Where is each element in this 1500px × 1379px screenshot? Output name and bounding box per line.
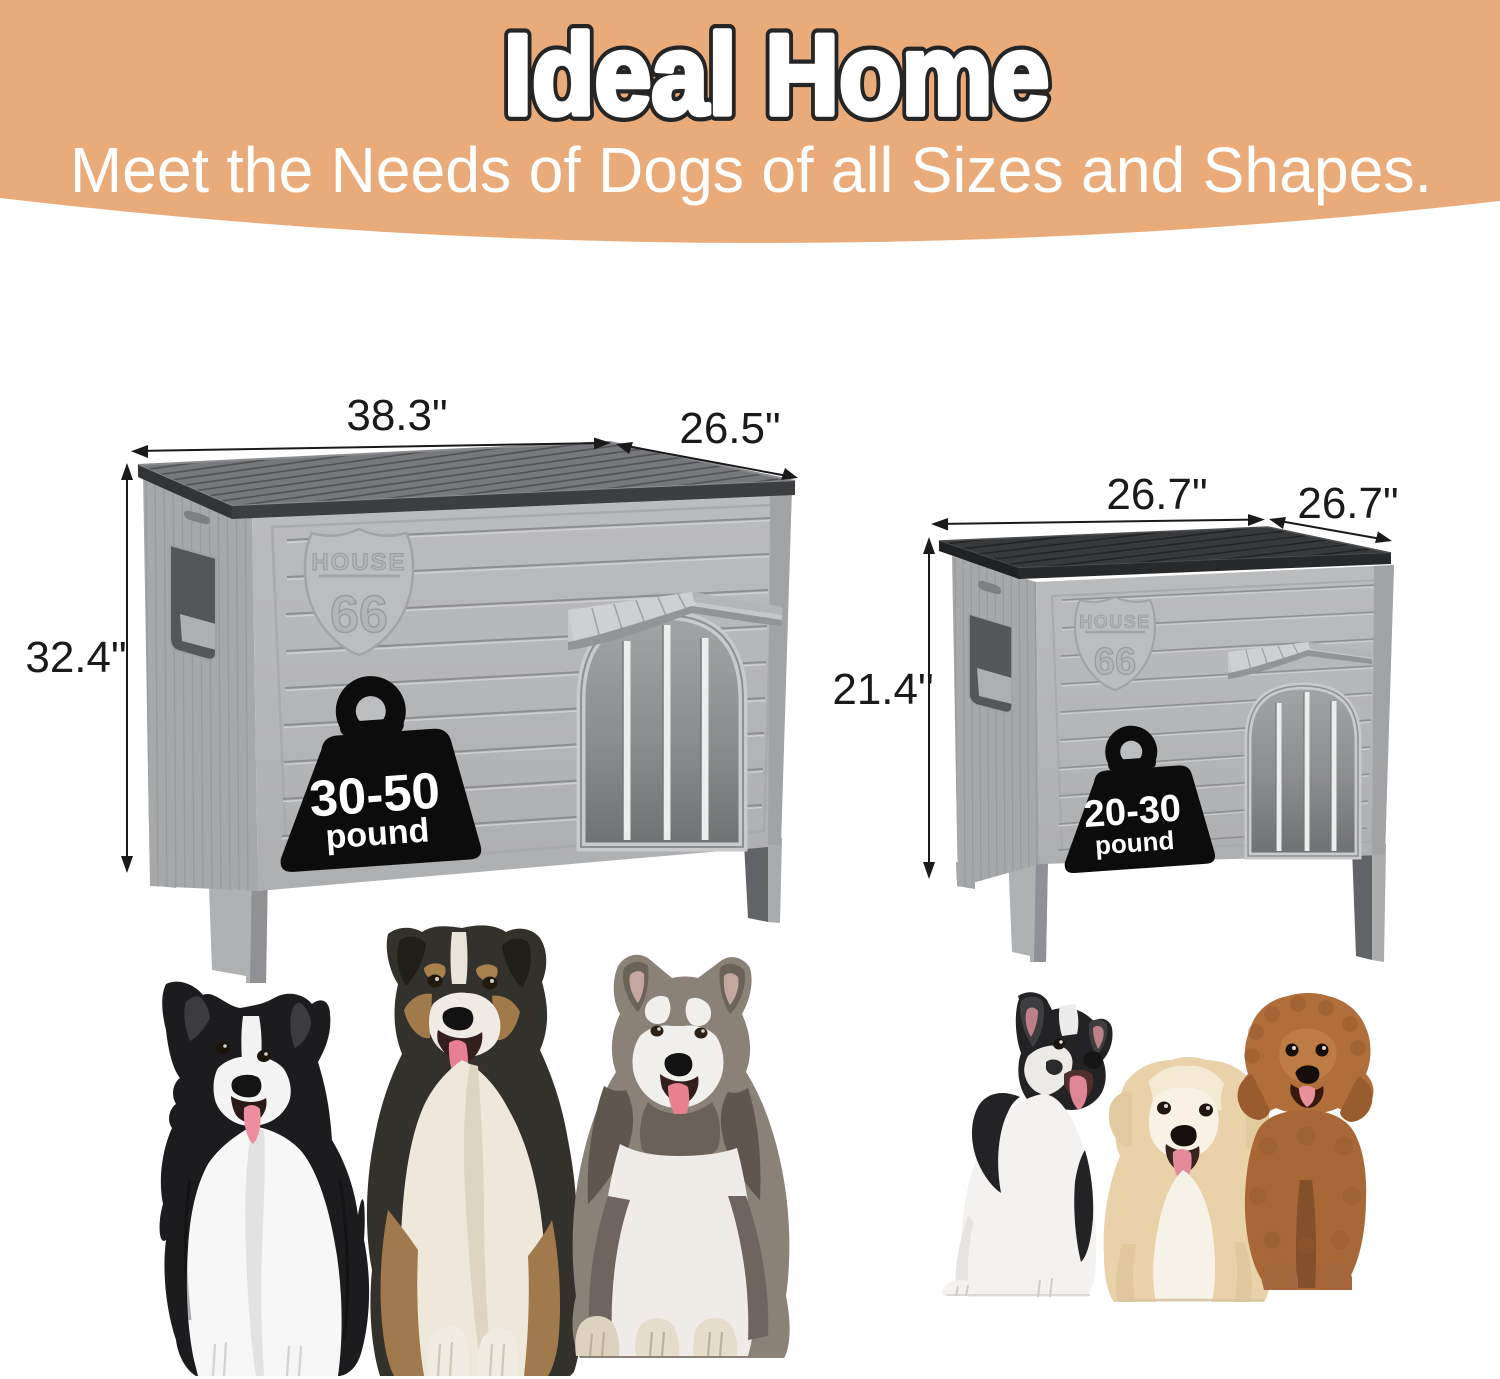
svg-text:HOUSE: HOUSE bbox=[1079, 612, 1151, 632]
svg-text:pound: pound bbox=[1094, 825, 1175, 860]
svg-text:66: 66 bbox=[1094, 641, 1136, 683]
svg-text:Meet the Needs of Dogs of all: Meet the Needs of Dogs of all Sizes and … bbox=[70, 134, 1432, 206]
svg-text:26.5": 26.5" bbox=[679, 404, 780, 453]
svg-text:HOUSE: HOUSE bbox=[311, 549, 406, 576]
svg-text:26.7": 26.7" bbox=[1297, 479, 1398, 528]
svg-text:pound: pound bbox=[324, 811, 430, 856]
svg-text:21.4": 21.4" bbox=[832, 665, 933, 714]
svg-text:32.4": 32.4" bbox=[25, 633, 126, 682]
svg-text:26.7": 26.7" bbox=[1106, 470, 1207, 519]
svg-text:38.3": 38.3" bbox=[346, 391, 447, 440]
svg-text:Ideal Home: Ideal Home bbox=[504, 12, 1050, 139]
svg-text:66: 66 bbox=[330, 586, 388, 644]
